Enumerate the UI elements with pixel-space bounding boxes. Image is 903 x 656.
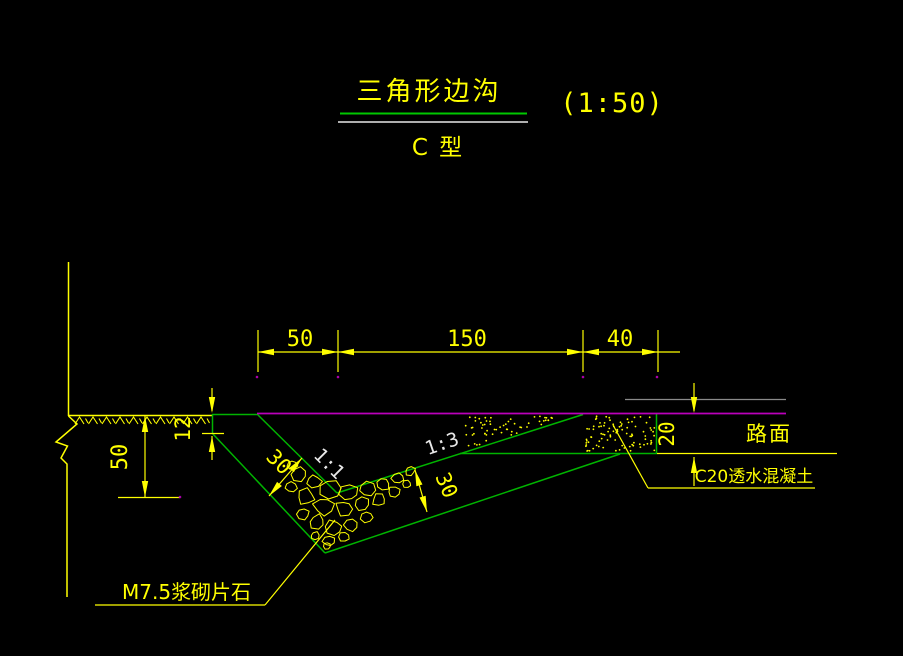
arrowhead xyxy=(209,397,215,413)
stipple-dot xyxy=(484,424,486,426)
stipple-dot xyxy=(593,425,595,427)
dim-top-right: 40 xyxy=(607,327,634,352)
snap-blip xyxy=(179,496,182,499)
ditch-cross-section-drawing: 三角形边沟 C 型 (1:50) 50 150 40 50 12 20 30 3… xyxy=(0,0,903,656)
stipple-dot xyxy=(631,436,633,438)
stipple-dot xyxy=(650,429,652,431)
cad-canvas: 三角形边沟 C 型 (1:50) 50 150 40 50 12 20 30 3… xyxy=(0,0,903,656)
stipple-dot xyxy=(626,433,628,435)
stipple-dot xyxy=(596,445,598,447)
stipple-dot xyxy=(599,422,601,424)
stipple-dot xyxy=(495,429,497,431)
stipple-dot xyxy=(474,443,476,445)
stipple-dot xyxy=(639,443,641,445)
stipple-dot xyxy=(598,446,600,448)
stipple-dot xyxy=(486,420,488,422)
dim-step: 12 xyxy=(171,416,195,441)
stipple-dot xyxy=(609,419,611,421)
stipple-dot xyxy=(591,436,593,438)
concrete-stipple-hatch xyxy=(465,415,655,452)
stipple-dot xyxy=(485,440,487,442)
stipple-dot xyxy=(635,426,637,428)
stone xyxy=(360,512,373,523)
stipple-dot xyxy=(505,423,507,425)
snap-blip xyxy=(656,376,659,379)
concrete-label: C20透水混凝土 xyxy=(695,467,814,487)
arrowhead xyxy=(258,349,274,355)
dim-lining-right: 30 xyxy=(430,469,462,502)
stipple-dot xyxy=(506,429,508,431)
stipple-dot xyxy=(588,428,590,430)
stipple-dot xyxy=(511,431,513,433)
stipple-dot xyxy=(492,433,494,435)
dim-top-left: 50 xyxy=(287,327,314,352)
stipple-dot xyxy=(596,417,598,419)
stipple-dot xyxy=(588,441,590,443)
stipple-dot xyxy=(547,420,549,422)
arrowhead xyxy=(415,470,422,486)
stipple-dot xyxy=(494,429,496,431)
stipple-dot xyxy=(585,444,587,446)
stipple-dot xyxy=(546,417,548,419)
stipple-dot xyxy=(585,442,587,444)
stipple-dot xyxy=(600,425,602,427)
ground-hatch-mark xyxy=(102,417,115,424)
stipple-dot xyxy=(643,444,645,446)
stipple-dot xyxy=(626,427,628,429)
ground-hatch-mark xyxy=(197,417,210,424)
stipple-dot xyxy=(630,450,632,452)
stone xyxy=(373,494,385,505)
stipple-dot xyxy=(634,417,636,419)
stipple-dot xyxy=(621,423,623,425)
stipple-dot xyxy=(539,416,541,418)
snap-blip xyxy=(337,376,340,379)
stipple-dot xyxy=(619,426,621,428)
dim-pavement: 20 xyxy=(655,421,679,446)
stipple-dot xyxy=(619,449,621,451)
stone xyxy=(310,514,323,529)
stipple-dot xyxy=(609,434,611,436)
type-label: C 型 xyxy=(412,135,464,161)
arrowhead xyxy=(420,496,427,512)
arrowhead xyxy=(583,349,599,355)
stipple-dot xyxy=(610,436,612,438)
stipple-dot xyxy=(608,428,610,430)
stipple-dot xyxy=(640,416,642,418)
stipple-dot xyxy=(528,422,530,424)
stipple-dot xyxy=(645,438,647,440)
excavation-line-right-1to3 xyxy=(325,454,620,553)
rubble-stone-hatch xyxy=(285,461,415,549)
snap-blip xyxy=(256,376,259,379)
dim-top-mid: 150 xyxy=(447,327,487,352)
slope-label-left: 1:1 xyxy=(309,444,349,484)
arrowhead xyxy=(691,397,697,413)
stipple-dot xyxy=(643,431,645,433)
stipple-dot xyxy=(607,431,609,433)
stipple-dot xyxy=(510,418,512,420)
stipple-dot xyxy=(604,434,606,436)
stipple-dot xyxy=(647,443,649,445)
stone xyxy=(343,519,357,532)
stipple-dot xyxy=(628,422,630,424)
masonry-label: M7.5浆砌片石 xyxy=(122,580,251,604)
arrowhead xyxy=(338,349,354,355)
stipple-dot xyxy=(586,440,588,442)
stipple-dot xyxy=(489,421,491,423)
stipple-dot xyxy=(501,432,503,434)
stipple-dot xyxy=(620,421,622,423)
ground-hatch-mark xyxy=(156,417,169,424)
stipple-dot xyxy=(629,446,631,448)
stipple-dot xyxy=(627,418,629,420)
stipple-dot xyxy=(631,421,633,423)
stipple-dot xyxy=(613,430,615,432)
stipple-dot xyxy=(621,445,623,447)
stone xyxy=(313,500,335,517)
stipple-dot xyxy=(598,440,600,442)
stipple-dot xyxy=(603,425,605,427)
stipple-dot xyxy=(510,434,512,436)
stipple-dot xyxy=(486,434,488,436)
arrowhead xyxy=(209,436,215,452)
stipple-dot xyxy=(615,450,617,452)
stipple-dot xyxy=(465,434,467,436)
stipple-dot xyxy=(589,450,591,452)
ground-hatch-mark xyxy=(116,417,129,424)
stipple-dot xyxy=(503,425,505,427)
stipple-dot xyxy=(514,423,516,425)
stipple-dot xyxy=(650,427,652,429)
stipple-dot xyxy=(649,416,651,418)
stipple-dot xyxy=(468,445,470,447)
arrowhead xyxy=(567,349,583,355)
stone xyxy=(339,533,350,542)
stipple-dot xyxy=(620,425,622,427)
stipple-dot xyxy=(640,446,642,448)
stipple-dot xyxy=(465,425,467,427)
stone xyxy=(389,487,400,497)
stipple-dot xyxy=(543,420,545,422)
stipple-dot xyxy=(602,433,604,435)
stipple-dot xyxy=(601,438,603,440)
stone xyxy=(297,509,310,520)
stone xyxy=(377,479,389,490)
stipple-dot xyxy=(539,421,541,423)
stipple-dot xyxy=(608,417,610,419)
stone xyxy=(355,497,368,511)
stipple-dot xyxy=(473,433,475,435)
stipple-dot xyxy=(516,432,518,434)
ground-hatch-mark xyxy=(89,417,102,424)
arrowhead xyxy=(642,349,658,355)
stipple-dot xyxy=(592,448,594,450)
stipple-dot xyxy=(652,431,654,433)
stipple-dot xyxy=(545,419,547,421)
stipple-dot xyxy=(469,416,471,418)
stipple-dot xyxy=(607,439,609,441)
stone xyxy=(336,503,353,517)
scale-label: (1:50) xyxy=(560,88,664,119)
stipple-dot xyxy=(519,426,521,428)
stipple-dot xyxy=(508,421,510,423)
stipple-dot xyxy=(600,433,602,435)
excavation-line-left-1to1 xyxy=(212,433,325,553)
stipple-dot xyxy=(475,420,477,422)
stipple-dot xyxy=(472,434,474,436)
stipple-dot xyxy=(478,418,480,420)
stipple-dot xyxy=(621,429,623,431)
stone xyxy=(285,482,297,492)
stipple-dot xyxy=(644,435,646,437)
arrowhead xyxy=(322,349,338,355)
stipple-dot xyxy=(632,445,634,447)
dim-depth: 50 xyxy=(108,444,133,471)
stipple-dot xyxy=(482,424,484,426)
stipple-dot xyxy=(484,433,486,435)
stipple-dot xyxy=(586,428,588,430)
masonry-leader-line xyxy=(265,520,335,605)
stipple-dot xyxy=(474,417,476,419)
stipple-dot xyxy=(596,415,598,417)
stipple-dot xyxy=(646,422,648,424)
stipple-dot xyxy=(605,416,607,418)
stipple-dot xyxy=(593,428,595,430)
stipple-dot xyxy=(472,427,474,429)
stipple-dot xyxy=(633,442,635,444)
stipple-dot xyxy=(586,450,588,452)
stone xyxy=(311,532,319,540)
break-symbol xyxy=(56,416,77,597)
stone xyxy=(403,480,411,487)
stipple-dot xyxy=(486,430,488,432)
stipple-dot xyxy=(479,444,481,446)
ground-hatch-mark xyxy=(129,417,142,424)
stipple-dot xyxy=(653,450,655,452)
stipple-dot xyxy=(616,429,618,431)
stone xyxy=(324,543,331,549)
concrete-leader-line xyxy=(613,425,648,488)
stipple-dot xyxy=(631,433,633,435)
stipple-dot xyxy=(650,440,652,442)
stipple-dot xyxy=(490,417,492,419)
stone xyxy=(299,488,315,505)
stipple-dot xyxy=(499,426,501,428)
stipple-dot xyxy=(614,439,616,441)
stipple-dot xyxy=(481,427,483,429)
stipple-dot xyxy=(484,417,486,419)
stipple-dot xyxy=(540,424,542,426)
drawing-title: 三角形边沟 xyxy=(356,77,501,107)
arrowhead xyxy=(142,481,148,497)
stipple-dot xyxy=(534,416,536,418)
stipple-dot xyxy=(602,447,604,449)
stipple-dot xyxy=(490,423,492,425)
stone xyxy=(320,481,341,499)
stipple-dot xyxy=(476,444,478,446)
stipple-dot xyxy=(651,442,653,444)
stipple-dot xyxy=(550,417,552,419)
stipple-dot xyxy=(526,426,528,428)
stipple-dot xyxy=(604,422,606,424)
stipple-dot xyxy=(480,422,482,424)
road-surface-label: 路面 xyxy=(746,422,792,446)
stipple-dot xyxy=(598,426,600,428)
snap-blip xyxy=(582,376,585,379)
